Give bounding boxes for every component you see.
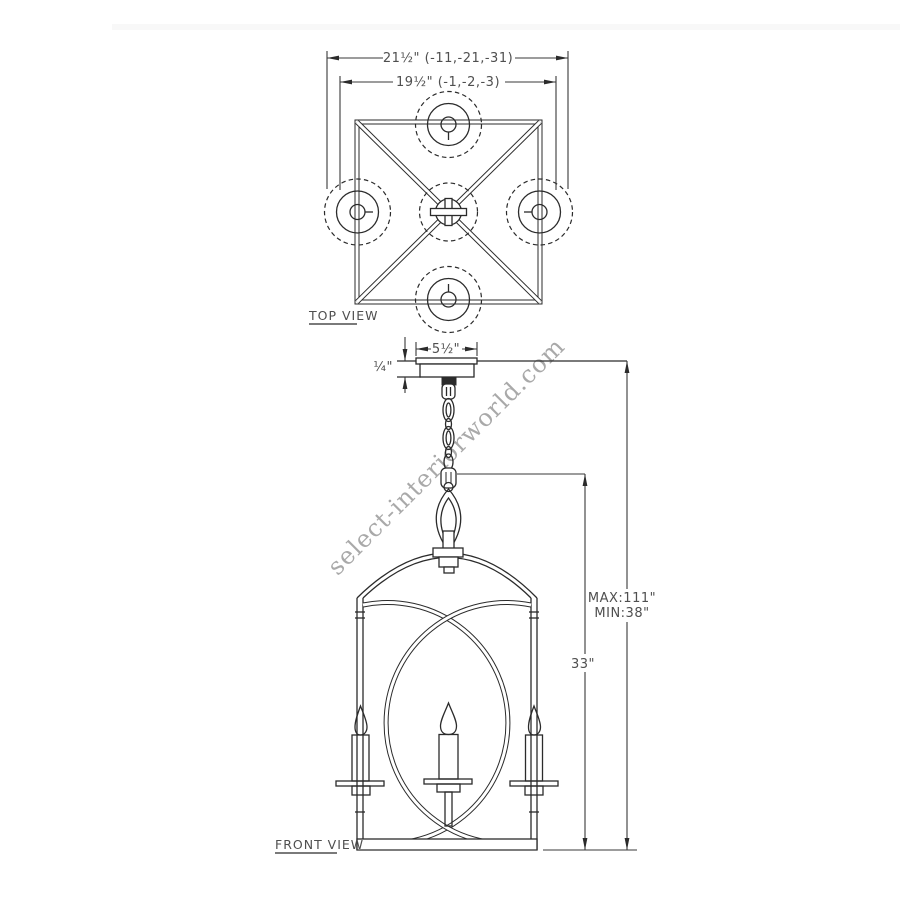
candle-center: [424, 703, 472, 826]
bobeche-cup: [437, 784, 460, 792]
dimension-max-height-text: MAX:111": [588, 591, 656, 606]
bobeche-cup: [352, 786, 370, 795]
front-view: 5½" ¼": [275, 337, 656, 853]
candle-body: [352, 735, 369, 781]
arrowhead: [403, 349, 408, 361]
arrowhead: [544, 80, 556, 85]
dimension-body-height-text: 33": [571, 657, 595, 672]
drawing-canvas: select-interiorworld.com 21½" (-11,-21,-…: [0, 0, 900, 900]
front-view-label: FRONT VIEW: [275, 837, 364, 852]
dome-collar: [433, 548, 463, 573]
arrowhead: [465, 347, 477, 352]
top-view-label: TOP VIEW: [308, 308, 378, 323]
arrowhead: [327, 56, 339, 61]
hub-cross-horizontal: [431, 209, 467, 216]
collar-tab: [444, 567, 454, 573]
side-rails: [355, 598, 539, 850]
dimension-canopy-height-text: ¼": [373, 360, 393, 375]
arrowhead: [403, 377, 408, 389]
dimension-overall-height: MAX:111" MIN:38": [543, 361, 656, 850]
arrowhead: [340, 80, 352, 85]
dimension-canopy-width-text: 5½": [432, 342, 460, 357]
arrowhead: [583, 474, 588, 486]
crossing-arcs: [363, 602, 531, 843]
chain-end-loop: [441, 468, 456, 488]
arrowhead: [416, 347, 428, 352]
canopy-body: [420, 364, 474, 377]
bobeche-plate: [424, 779, 472, 784]
arrowhead: [625, 361, 630, 373]
scan-artifact-band: [112, 24, 900, 30]
flame: [529, 706, 541, 735]
collar-flange: [433, 548, 463, 557]
dimension-canopy-height: ¼": [373, 337, 407, 393]
top-view: 21½" (-11,-21,-31) 19½" (-1,-2,-3): [308, 49, 573, 333]
bobeche-plate: [510, 781, 558, 786]
candle-body: [526, 735, 543, 781]
dimension-body-height: 33": [457, 474, 599, 850]
dimension-overall-width: 21½" (-11,-21,-31): [327, 49, 568, 189]
candle-left: [336, 706, 384, 795]
finial-neck: [443, 531, 454, 549]
chain-coupler: [442, 384, 455, 399]
lighting-fixture-spec-drawing: select-interiorworld.com 21½" (-11,-21,-…: [0, 0, 900, 900]
arrowhead: [556, 56, 568, 61]
flame: [441, 703, 457, 735]
bobeche-cup: [525, 786, 543, 795]
dimension-overall-width-text: 21½" (-11,-21,-31): [383, 51, 513, 66]
finial: [436, 489, 460, 551]
arrowhead: [625, 838, 630, 850]
band-outline: [357, 839, 537, 850]
dimension-min-height-text: MIN:38": [594, 606, 649, 621]
bottom-band: [357, 839, 537, 850]
bobeche-plate: [336, 781, 384, 786]
collar-body: [439, 557, 458, 567]
dimension-inner-width-text: 19½" (-1,-2,-3): [396, 75, 500, 90]
dimension-canopy-width: 5½": [416, 340, 477, 357]
canopy-plate: [416, 358, 477, 364]
canopy: [416, 358, 477, 385]
arrowhead: [583, 838, 588, 850]
chain-link-inner: [446, 403, 451, 417]
candle-body: [439, 735, 458, 780]
candle-stem: [445, 792, 452, 826]
candle-right: [510, 706, 558, 795]
